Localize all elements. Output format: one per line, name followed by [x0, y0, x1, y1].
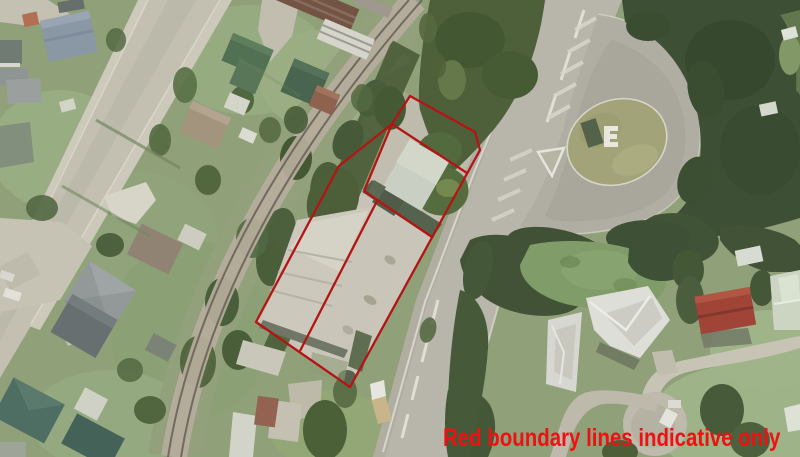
svg-text:Red boundary lines indicative: Red boundary lines indicative only [443, 423, 781, 451]
